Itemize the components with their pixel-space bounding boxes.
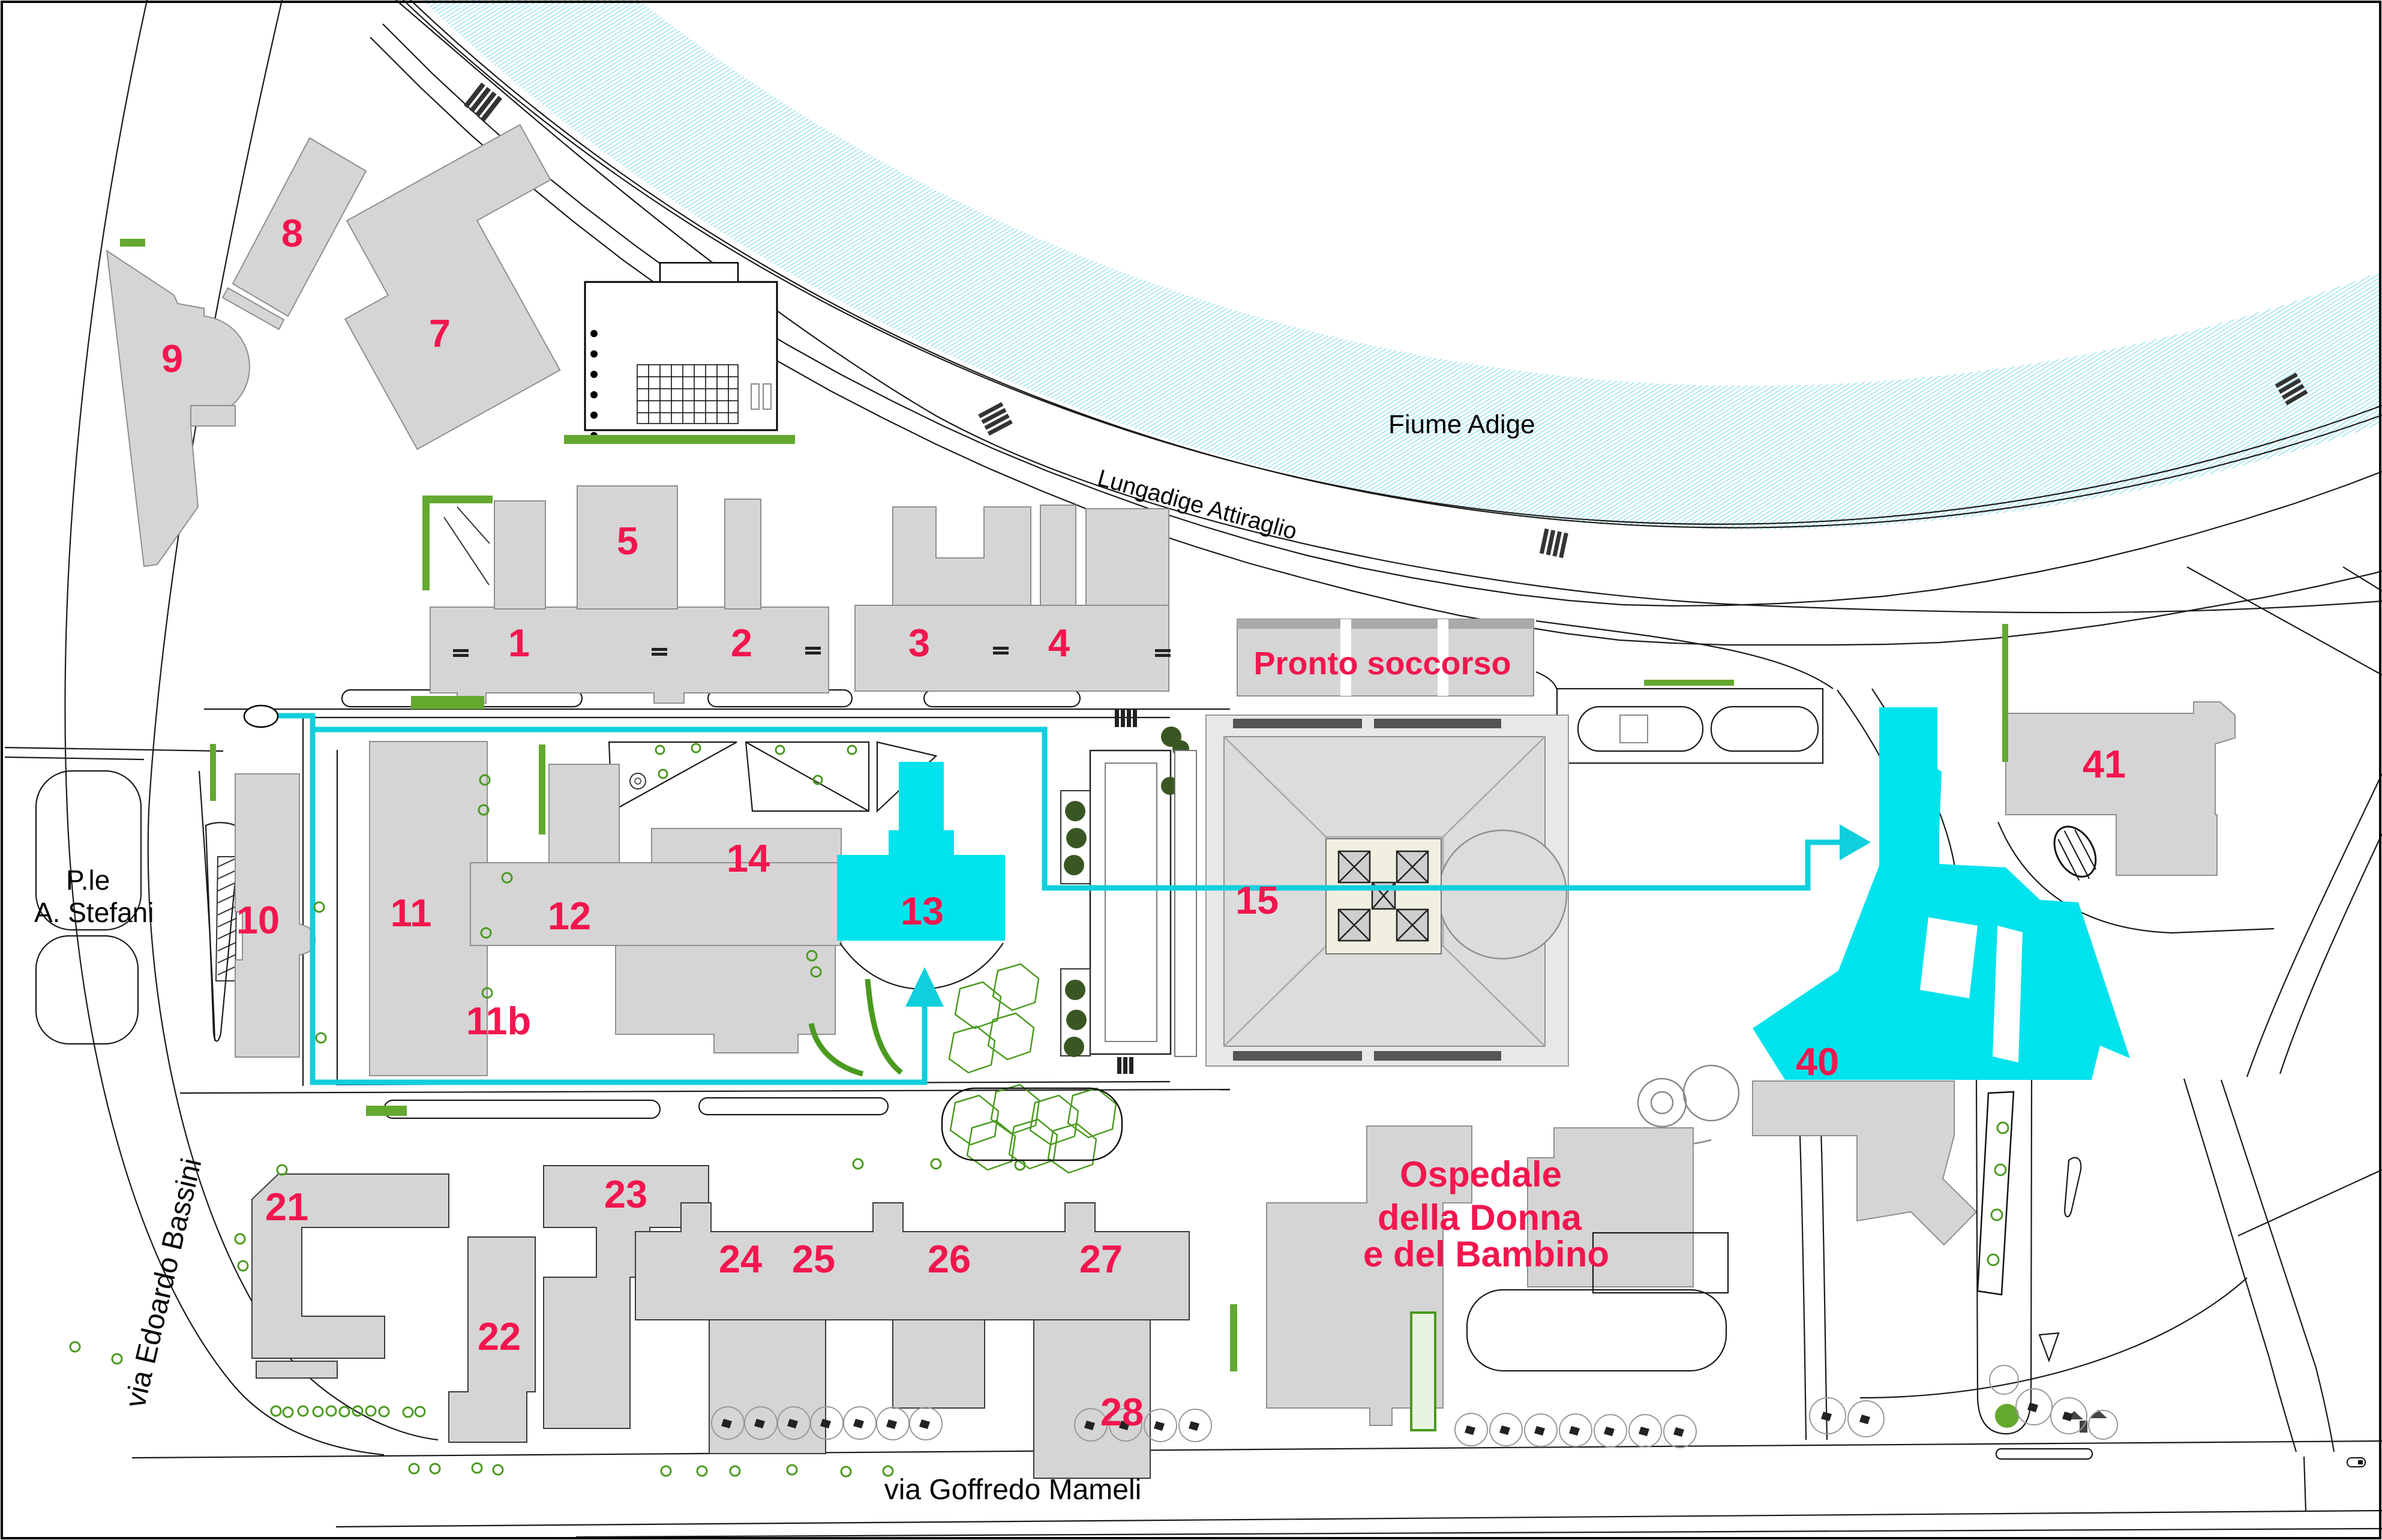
svg-text:14: 14 [727,836,770,880]
svg-text:15: 15 [1235,878,1279,922]
svg-text:41: 41 [2083,742,2126,786]
svg-text:13: 13 [901,889,944,933]
svg-text:25: 25 [792,1237,835,1281]
svg-text:26: 26 [928,1237,971,1281]
svg-text:24: 24 [719,1237,762,1281]
svg-text:della Donna: della Donna [1378,1197,1582,1238]
svg-text:P.le: P.le [66,864,110,896]
svg-text:9: 9 [161,337,183,380]
svg-text:11b: 11b [466,999,531,1043]
svg-text:40: 40 [1796,1040,1839,1083]
svg-text:e del Bambino: e del Bambino [1363,1234,1609,1274]
svg-text:27: 27 [1079,1237,1123,1281]
svg-text:4: 4 [1048,621,1070,665]
svg-text:28: 28 [1100,1390,1144,1434]
svg-text:5: 5 [617,519,638,563]
svg-text:3: 3 [908,621,930,665]
svg-text:10: 10 [236,898,280,942]
svg-text:1: 1 [508,621,530,665]
svg-text:Ospedale: Ospedale [1400,1154,1562,1194]
svg-text:22: 22 [478,1314,521,1358]
svg-text:21: 21 [265,1185,308,1229]
svg-text:23: 23 [604,1172,647,1216]
svg-text:Fiume Adige: Fiume Adige [1388,410,1535,439]
svg-text:2: 2 [731,621,752,665]
svg-text:12: 12 [548,894,591,938]
svg-text:via Goffredo Mameli: via Goffredo Mameli [884,1474,1142,1506]
svg-text:Pronto soccorso: Pronto soccorso [1253,646,1511,682]
svg-text:7: 7 [429,311,451,355]
svg-text:8: 8 [281,211,303,255]
svg-text:11: 11 [391,891,432,935]
svg-text:A. Stefani: A. Stefani [34,897,154,928]
